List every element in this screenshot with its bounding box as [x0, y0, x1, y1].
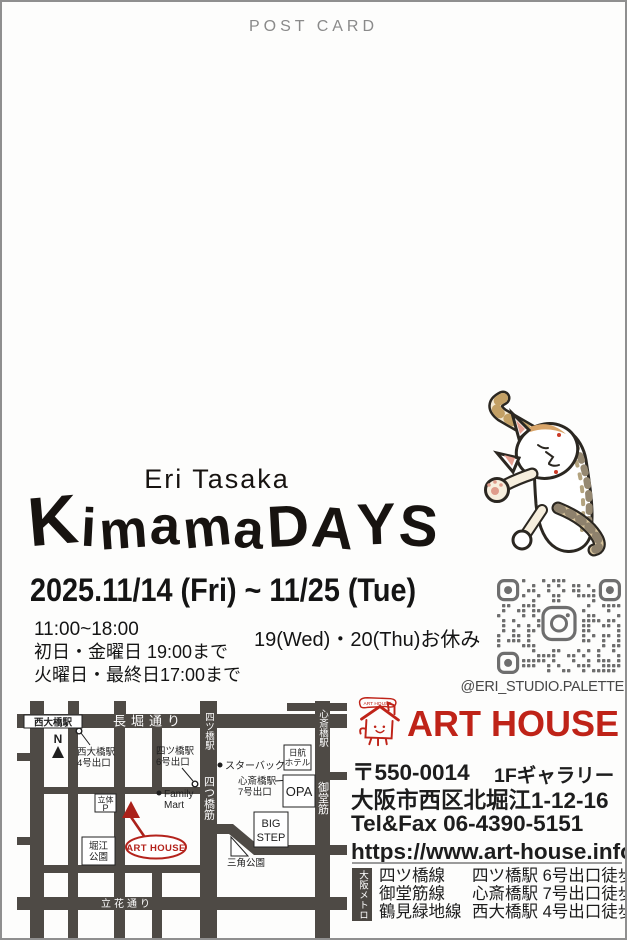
metro-row: 四ツ橋線 四ツ橋駅 6号出口徒歩1分 [379, 868, 627, 886]
postcard: POST CARD [0, 0, 627, 940]
map-road-nagahori: 長堀通り [113, 714, 185, 729]
hours-note-2: 火曜日・最終日17:00まで [34, 664, 241, 687]
hours-line: 11:00~18:00 [34, 618, 241, 641]
metro-access-text: 心斎橋駅 7号出口徒歩8分 [472, 886, 627, 904]
map-horie-park: 堀江 [89, 841, 109, 852]
metro-line-name: 鶴見緑地線 [379, 904, 472, 922]
north-label: N [54, 732, 63, 746]
metro-line-name: 四ツ橋線 [379, 868, 472, 886]
map-exit-yotsubashi: 四ツ橋駅 [156, 745, 195, 757]
map-arthouse: ART HOUSE [126, 843, 186, 854]
svg-text:7号出口: 7号出口 [238, 786, 272, 798]
venue-name: ART HOUSE [407, 703, 619, 745]
map-station-nishiohashi: 西大橋駅 [34, 717, 73, 729]
venue-tel: Tel&Fax 06-4390-5151 [351, 811, 583, 837]
map-exit-nishiohashi: 西大橋駅 [77, 746, 116, 758]
svg-text:ホテル: ホテル [285, 758, 311, 768]
map-roads [17, 701, 347, 939]
svg-text:Mart: Mart [164, 800, 184, 811]
map-exit-shinsaibashi: 心斎橋駅 [238, 775, 277, 787]
exhibition-title: Kimama DAYS [28, 488, 498, 557]
map-road-yotsubashisuji: 四つ橋筋 [203, 776, 216, 821]
map-opa: OPA [286, 784, 313, 799]
exhibition-dates: 2025.11/14 (Fri) ~ 11/25 (Tue) [30, 572, 416, 609]
metro-label-box: 大阪メトロ [352, 868, 372, 921]
svg-text:4号出口: 4号出口 [77, 757, 111, 769]
poi-dot-icon [157, 791, 162, 796]
poi-dot-icon [218, 763, 223, 768]
svg-text:6号出口: 6号出口 [156, 756, 190, 768]
map-road-midosuji: 御堂筋 [317, 780, 330, 815]
map-bigstep: BIG [262, 818, 281, 830]
svg-text:P: P [102, 803, 108, 813]
map-triangle-park: 三角公園 [227, 857, 265, 869]
metro-line-name: 御堂筋線 [379, 886, 472, 904]
hours-note-1: 初日・金曜日 19:00まで [34, 641, 241, 664]
map-station-yotsubashi: 四ツ橋駅 [203, 712, 215, 751]
closed-days: 19(Wed)・20(Thu)お休み [254, 623, 480, 652]
opening-hours: 11:00~18:00 初日・金曜日 19:00まで 火曜日・最終日17:00ま… [34, 618, 241, 687]
svg-text:公園: 公園 [89, 852, 108, 863]
svg-text:STEP: STEP [257, 832, 286, 844]
map-familymart: Family [164, 789, 193, 800]
metro-access: 大阪メトロ 四ツ橋線 四ツ橋駅 6号出口徒歩1分 御堂筋線 心斎橋駅 7号出口徒… [352, 868, 627, 921]
map-station-shinsaibashi: 心斎橋駅 [317, 709, 329, 748]
metro-row: 鶴見緑地線 西大橋駅 4号出口徒歩6分 [379, 904, 627, 922]
exit-marker-icon [76, 728, 82, 734]
metro-access-text: 四ツ橋駅 6号出口徒歩1分 [472, 868, 627, 886]
instagram-icon [543, 608, 575, 640]
arthouse-logo-icon: ART HOUSE [348, 693, 410, 747]
instagram-handle[interactable]: @ERI_STUDIO.PALETTE [454, 679, 624, 695]
map-hotel: 日航 [289, 748, 307, 758]
map-road-tachibana: 立花通り [101, 897, 153, 910]
metro-row: 御堂筋線 心斎橋駅 7号出口徒歩8分 [379, 886, 627, 904]
divider [352, 862, 622, 864]
postcard-label: POST CARD [2, 18, 625, 36]
access-map: 長堀通り 立花通り 四ツ橋駅 四つ橋筋 心斎橋駅 御堂筋 西大橋駅 N 西大橋駅… [17, 701, 347, 939]
exit-marker-icon [192, 781, 198, 787]
metro-label: 大阪メトロ [355, 870, 369, 920]
instagram-qr-code[interactable] [497, 579, 621, 674]
metro-access-text: 西大橋駅 4号出口徒歩6分 [472, 904, 627, 922]
north-arrow-icon [52, 746, 64, 758]
